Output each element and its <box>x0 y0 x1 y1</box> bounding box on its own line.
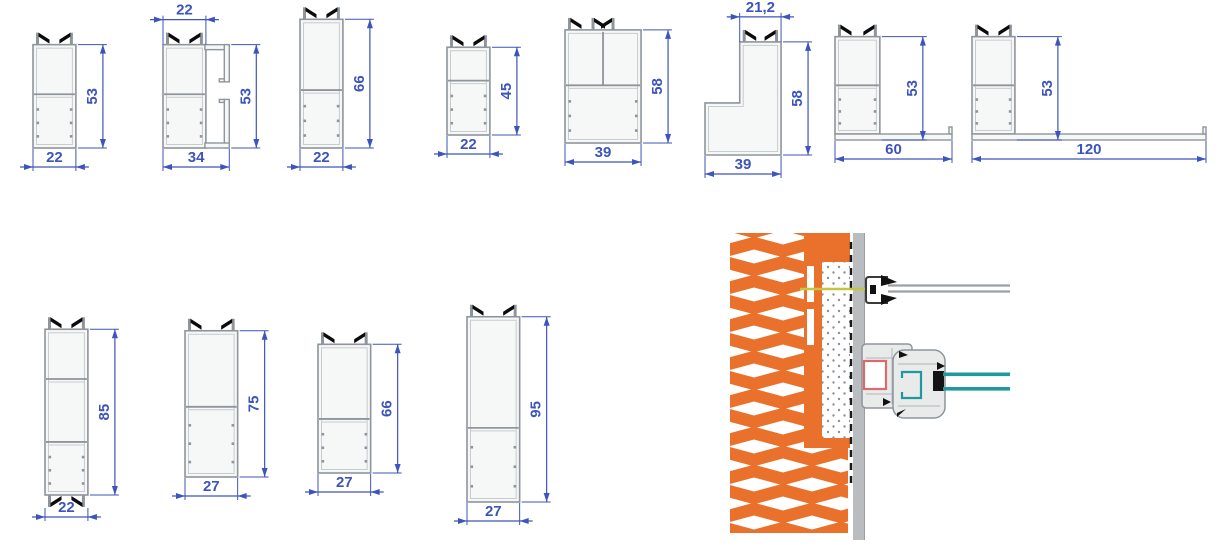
dimension-label: 66 <box>379 400 396 417</box>
dimension-label: 22 <box>46 149 63 166</box>
dimension-label: 34 <box>188 149 205 166</box>
dimension-label: 53 <box>237 88 254 105</box>
dimension-label: 27 <box>203 478 220 495</box>
steel-reinforcement <box>864 361 886 389</box>
dimension-label: 21,2 <box>746 0 775 16</box>
dimension-label: 22 <box>313 149 330 166</box>
technical-drawing-canvas: 532222533466224522583921,258395360531208… <box>0 0 1224 556</box>
dimension-label: 66 <box>351 75 368 92</box>
dimension-label: 53 <box>84 88 101 105</box>
dimension-label: 22 <box>176 2 193 19</box>
dimension-label: 27 <box>336 474 353 491</box>
dimension-label: 39 <box>735 156 752 173</box>
dimension-label: 27 <box>485 503 502 520</box>
dimension-label: 58 <box>649 78 666 95</box>
dimension-label: 39 <box>595 144 612 161</box>
glass-pane <box>943 373 1010 377</box>
dimension-label: 95 <box>528 401 545 418</box>
adhesive-slot <box>807 309 814 345</box>
dimension-label: 60 <box>885 141 902 158</box>
profile-drawing-svg: 532222533466224522583921,258395360531208… <box>0 0 1224 556</box>
dimension-label: 75 <box>246 396 263 413</box>
dimension-label: 22 <box>460 136 477 153</box>
dimension-label: 120 <box>1076 141 1101 158</box>
dimension-label: 85 <box>96 404 113 421</box>
adhesive-slot <box>807 266 814 302</box>
dimension-label: 22 <box>58 499 75 516</box>
glazing-spacer <box>933 371 944 391</box>
glass-pane <box>943 387 1010 391</box>
dimension-label: 53 <box>1039 80 1056 97</box>
dimension-label: 58 <box>789 90 806 107</box>
dimension-label: 53 <box>904 80 921 97</box>
dimension-label: 45 <box>498 83 515 100</box>
